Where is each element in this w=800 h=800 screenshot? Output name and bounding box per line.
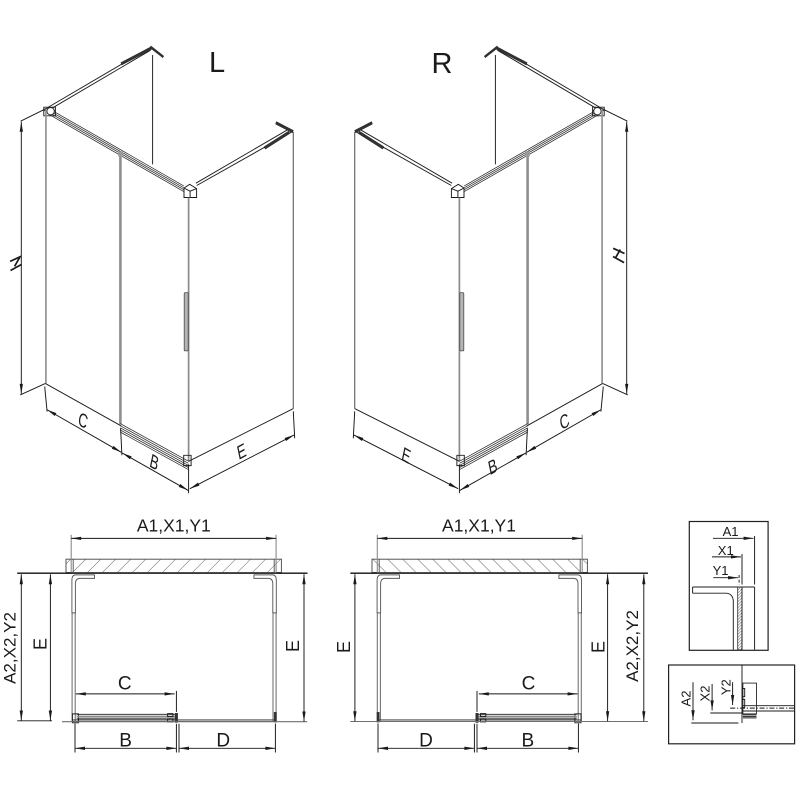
svg-text:A2,X2,Y2: A2,X2,Y2 — [623, 610, 642, 682]
svg-text:X1: X1 — [718, 543, 734, 558]
svg-text:C: C — [522, 674, 536, 695]
svg-text:D: D — [216, 731, 230, 752]
svg-text:R: R — [432, 48, 453, 80]
svg-text:A1: A1 — [723, 524, 739, 539]
svg-text:X2: X2 — [697, 686, 712, 702]
svg-text:Y1: Y1 — [713, 563, 729, 578]
svg-text:C: C — [118, 674, 132, 695]
svg-text:E: E — [334, 641, 354, 653]
svg-text:A1,X1,Y1: A1,X1,Y1 — [137, 516, 211, 536]
svg-text:D: D — [419, 731, 433, 752]
svg-text:L: L — [209, 47, 225, 79]
svg-text:E: E — [31, 638, 51, 650]
svg-text:A2,X2,Y2: A2,X2,Y2 — [1, 612, 20, 684]
svg-text:B: B — [521, 731, 534, 752]
svg-text:B: B — [119, 731, 132, 752]
svg-text:A2: A2 — [678, 691, 693, 707]
svg-text:E: E — [283, 640, 303, 652]
svg-text:Y2: Y2 — [719, 679, 734, 695]
svg-text:E: E — [589, 641, 609, 653]
svg-text:A1,X1,Y1: A1,X1,Y1 — [442, 516, 516, 536]
